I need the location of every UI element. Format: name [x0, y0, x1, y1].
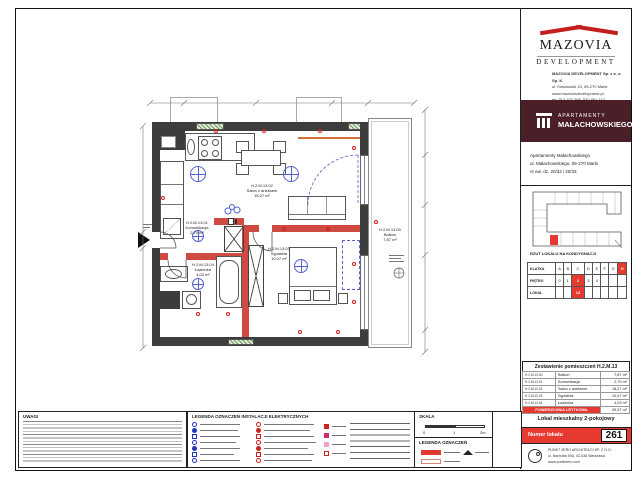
room-label-hall: H.2.M.13.01 Komunikacja 2,70 m² [178, 220, 216, 236]
locator-cell [556, 287, 564, 299]
wall-left-upper [152, 150, 160, 232]
schedule-name: Balkon [556, 372, 601, 379]
locator-cell: E [593, 263, 601, 275]
legend-symbol-red [256, 446, 261, 451]
schedule-name: Łazienka [556, 400, 601, 407]
socket [352, 300, 356, 304]
legend-swatch-pink [324, 442, 329, 447]
conduit-line [298, 137, 360, 139]
locator-row-lokal: LOKAL 13 [528, 287, 627, 299]
legend-symbol-red [256, 452, 261, 457]
mazovia-roof-right [576, 25, 618, 36]
legend-symbol-blue [192, 422, 197, 427]
scale-tick-0: 0 [423, 430, 425, 435]
nightstand [338, 293, 348, 304]
project-line: Apartamenty Małachowskiego [530, 152, 626, 160]
schedule-row: H.2.M.13.02 Salon z aneksem 18,27 m² [523, 386, 630, 393]
locator-cell: A [556, 263, 564, 275]
washbasin [165, 269, 182, 279]
socket [282, 227, 286, 231]
wardrobe-dashed [342, 240, 360, 290]
brand-band: APARTAMENTY MAŁACHOWSKIEGO [521, 100, 631, 142]
key-plan-caption: RZUT LOKALU NA KONDYGNACJI [530, 251, 628, 256]
schedule-name: Komunikacja [556, 379, 601, 386]
schedule-area: 2,70 m² [601, 379, 630, 386]
mazovia-logo-rule [537, 56, 615, 57]
socket [161, 196, 165, 200]
room-area: 7,87 m² [372, 237, 408, 242]
locator-row-pietro: PIĘTRO 0 1 2 3 4 [528, 275, 627, 287]
locator-cell [618, 287, 627, 299]
pillow [294, 290, 311, 301]
legend-symbol-red [256, 458, 261, 463]
locator-table: KLATKA A B C D E F G H PIĘTRO 0 1 2 3 4 … [527, 262, 627, 299]
room-label-bath: H.2.M.13.04 Łazienka 4,03 m² [184, 262, 222, 278]
door-size-smudge [143, 224, 152, 225]
locator-cell: D [584, 263, 593, 275]
socket [352, 262, 356, 266]
stove-burner [201, 150, 208, 157]
dining-table [241, 150, 281, 166]
pendant-lamp [229, 204, 235, 210]
locator-cell [609, 275, 618, 287]
counter-divider [161, 184, 183, 185]
locator-label: KLATKA [528, 263, 556, 275]
locator-label: LOKAL [528, 287, 556, 299]
window-lintel [196, 123, 224, 130]
nightstand [278, 293, 288, 304]
legend-symbol-blue [192, 428, 197, 433]
brand-line2: MAŁACHOWSKIEGO [558, 120, 633, 129]
locator-cell [601, 275, 609, 287]
balcony-note-smudge [389, 258, 401, 259]
developer-address-line: www.mazoviadevelopment.pl [552, 91, 628, 98]
legend-swatch-partition [421, 450, 441, 455]
ceiling-lamp [190, 166, 206, 182]
legend-symbol-red [256, 434, 261, 439]
locator-cell [564, 287, 572, 299]
unit-number-label: Numer lokalu [528, 432, 563, 438]
room-label-bedroom: H.2.M.13.03 Sypialnia 10,07 m² [256, 246, 302, 262]
socket [214, 129, 218, 133]
schedule-row: H.2.M.13.04 Łazienka 4,03 m² [523, 400, 630, 407]
scale-bar-solid [425, 425, 455, 428]
schedule-code: H.2.M.13.02 [523, 386, 556, 393]
socket [326, 227, 330, 231]
legend-swatch-magenta [324, 433, 329, 438]
schedule-code: H.2.M.13.03 [523, 393, 556, 400]
sofa [288, 196, 346, 220]
sofa-cushion-line [326, 197, 327, 214]
legend-symbol-blue [192, 446, 197, 451]
bathtub-inner [219, 260, 239, 304]
north-box [492, 411, 522, 468]
neighbour-balcony-outline [170, 97, 218, 123]
scale-title: SKALA [419, 414, 435, 419]
unit-number-value: 261 [601, 429, 627, 442]
locator-cell: 1 [564, 275, 572, 287]
schedule-area: 7,87 m² [601, 372, 630, 379]
locator-cell: F [601, 263, 609, 275]
locator-cell-selected: 13 [572, 287, 584, 299]
notes-text-smudge [23, 421, 182, 464]
electrical-legend-title: LEGENDA OZNACZEŃ INSTALACJI ELEKTRYCZNYC… [192, 414, 308, 419]
legend-symbol-red [256, 422, 261, 427]
general-legend-title: LEGENDA OZNACZEŃ [419, 440, 467, 445]
legend-swatch-outline2 [421, 459, 441, 464]
wall-bottom [152, 337, 368, 346]
electrical-legend-box: LEGENDA OZNACZEŃ INSTALACJI ELEKTRYCZNYC… [187, 411, 416, 468]
locator-row-klatka: KLATKA A B C D E F G H [528, 263, 627, 275]
locator-cell [609, 287, 618, 299]
locator-cell: 4 [593, 275, 601, 287]
bed-blanket-line [290, 286, 336, 287]
key-plan-highlighted-unit [550, 235, 558, 245]
counter-divider [161, 204, 183, 205]
stove-burner [201, 139, 208, 146]
schedule-code: H.2.M.13.04 [523, 400, 556, 407]
architect-line: www.punktzero.com [548, 460, 628, 466]
scale-tick-2: 2m [480, 430, 486, 435]
locator-cell-selected: 2 [572, 275, 584, 287]
room-area: 2,70 m² [178, 230, 216, 235]
washer-drum [186, 294, 197, 305]
sliding-door-symbol [228, 218, 234, 225]
schedule-row: H.2.M.13.03 Sypialnia 10,07 m² [523, 393, 630, 400]
locator-cell: G [609, 263, 618, 275]
stove-burner [212, 139, 219, 146]
legend-symbol-blue [192, 458, 197, 463]
locator-cell [593, 287, 601, 299]
socket [318, 129, 322, 133]
scale-box: SKALA 0 1 2m [414, 411, 494, 440]
sliding-door-symbol-leaf [235, 219, 237, 224]
scale-bar-open [455, 425, 485, 428]
schedule-row: H.2.M.13.00 Balkon 7,87 m² [523, 372, 630, 379]
socket [298, 330, 302, 334]
shaft-hatched [224, 226, 244, 252]
partition-living-bedroom-a [249, 225, 259, 232]
locator-cell: 0 [556, 275, 564, 287]
shaft-dark [160, 291, 180, 309]
locator-cell-selected: H [618, 263, 627, 275]
legend-swatch-red [324, 424, 329, 429]
brand-line1: APARTAMENTY [558, 113, 606, 119]
balcony-note-smudge [389, 261, 404, 262]
locator-label: PIĘTRO [528, 275, 556, 287]
neighbour-balcony-outline [296, 97, 342, 123]
key-plan [527, 188, 627, 250]
legend-symbol-red [256, 440, 261, 445]
locator-cell: B [564, 263, 572, 275]
developer-address-line: MAZOVIA DEVELOPMENT Sp. z o. o. Sp. K. [552, 71, 628, 84]
schedule-code: H.2.M.13.00 [523, 372, 556, 379]
socket [196, 312, 200, 316]
schedule-area: 10,07 m² [601, 393, 630, 400]
schedule-row: H.2.M.13.01 Komunikacja 2,70 m² [523, 379, 630, 386]
schedule-area: 4,03 m² [601, 400, 630, 407]
project-line: ul. Małachowskiego, 05-270 Marki [530, 160, 626, 168]
ceiling-lamp [192, 278, 204, 290]
notes-box: UWAGI [18, 411, 187, 468]
room-area: 18,27 m² [237, 193, 287, 198]
room-label-living: H.2.M.13.02 Salon z aneksem 18,27 m² [237, 183, 287, 199]
balcony-note-smudge [389, 255, 404, 256]
socket [336, 330, 340, 334]
project-block: Apartamenty Małachowskiego ul. Małachows… [521, 142, 631, 186]
schedule-name: Sypialnia [556, 393, 601, 400]
stove-burner [212, 150, 219, 157]
locator-cell [618, 275, 627, 287]
locator-cell: 3 [584, 275, 593, 287]
project-line: nr ew. dz. 20/32 i 20/33 [530, 168, 626, 176]
schedule-name: Salon z aneksem [556, 386, 601, 393]
kitchen-sink [187, 139, 195, 155]
door-size-smudge [143, 227, 150, 228]
locator-cell [584, 287, 593, 299]
legend-symbol-blue [192, 434, 197, 439]
legend-swatch-outline [324, 451, 329, 456]
locator-cell: C [572, 263, 584, 275]
socket [352, 146, 356, 150]
pillow [313, 290, 330, 301]
developer-address-line: ul. Kościuszki 43, 05-270 Marki [552, 84, 628, 91]
unit-number-band: Numer lokalu 261 [521, 428, 631, 443]
mazovia-logo-word: MAZOVIA [529, 38, 623, 54]
legend-symbol-red [256, 428, 261, 433]
shaft-opening [161, 136, 176, 148]
socket [226, 312, 230, 316]
architect-logo [528, 449, 542, 463]
wall-left-lower [152, 248, 160, 345]
developer-block: MAZOVIA DEVELOPMENT MAZOVIA DEVELOPMENT … [521, 8, 631, 100]
socket [262, 129, 266, 133]
mazovia-logo-word2: DEVELOPMENT [529, 58, 623, 66]
locator-cell [601, 287, 609, 299]
schedule-area: 18,27 m² [601, 386, 630, 393]
ceiling-lamp [283, 166, 299, 182]
legend-symbol-blue [192, 452, 197, 457]
schedule-code: H.2.M.13.01 [523, 379, 556, 386]
room-area: 4,03 m² [184, 272, 222, 277]
partition-hall-bath-a [160, 253, 168, 260]
legend-symbol-blue [192, 440, 197, 445]
window-lintel [228, 339, 254, 345]
socket [374, 220, 378, 224]
room-area: 10,07 m² [256, 256, 302, 261]
entrance-arrow [138, 232, 150, 248]
schedule-table: H.2.M.13.00 Balkon 7,87 m² H.2.M.13.01 K… [522, 371, 630, 414]
room-label-balcony: H.2.M.13.00 Balkon 7,87 m² [372, 227, 408, 243]
sofa-cushion-line [307, 197, 308, 214]
brand-logo-icon [536, 113, 552, 131]
legend-notes-smudge [350, 423, 410, 463]
sofa-back-line [289, 214, 345, 215]
general-legend-box: LEGENDA OZNACZEŃ [414, 437, 494, 468]
notes-title: UWAGI [23, 414, 38, 419]
architect-block: PUNKT ZERO ARCHITEKCI SP. Z O.O. ul. Nar… [521, 443, 631, 469]
scale-tick-1: 1 [453, 430, 455, 435]
unit-type: Lokal mieszkalny 2-pokojowy [521, 410, 631, 428]
legend-entrance-symbol [463, 450, 473, 455]
